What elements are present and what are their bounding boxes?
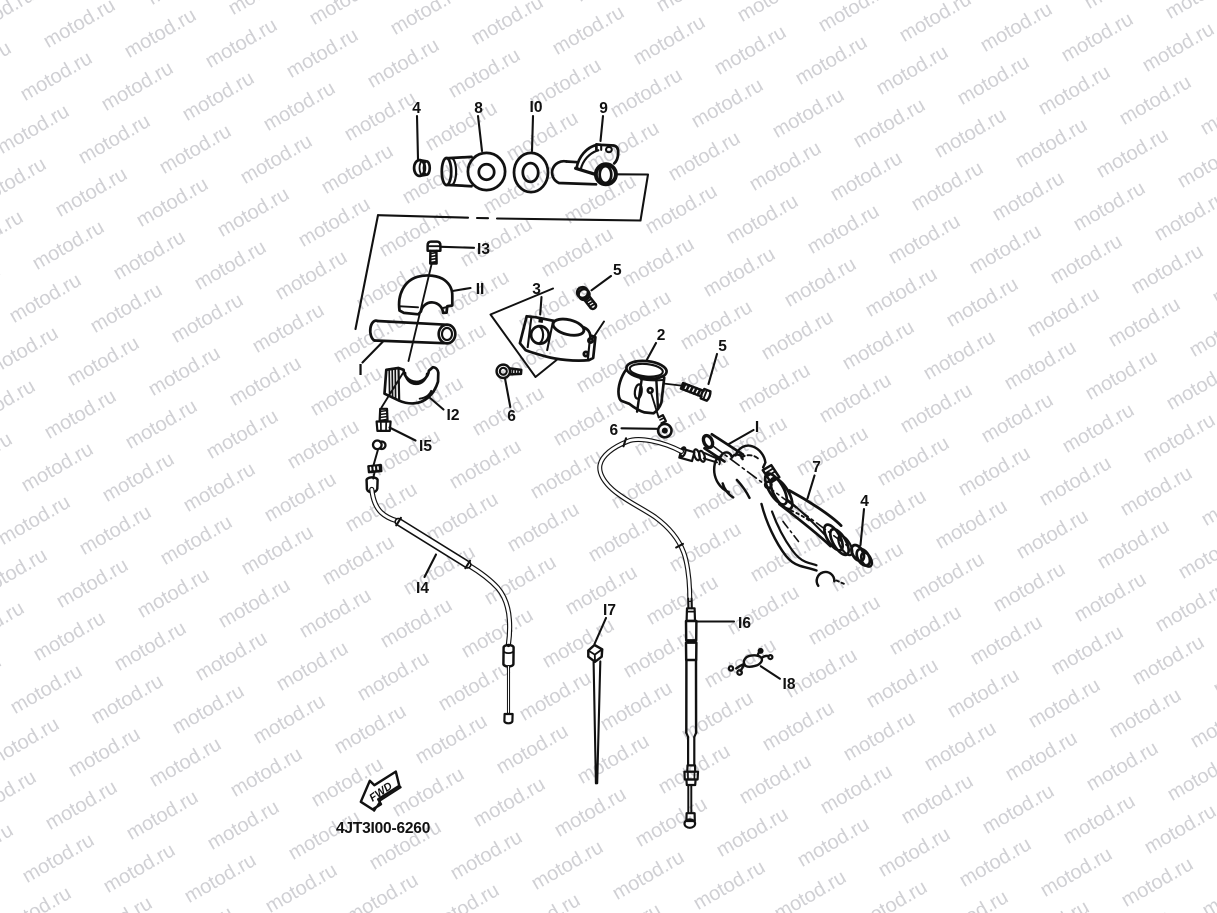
svg-text:I7: I7 (603, 602, 616, 619)
svg-text:I3: I3 (477, 241, 490, 258)
svg-text:5: 5 (613, 262, 622, 279)
svg-text:I5: I5 (419, 438, 432, 455)
svg-text:I0: I0 (530, 99, 543, 116)
svg-text:I: I (755, 419, 759, 436)
svg-text:I2: I2 (447, 407, 460, 424)
svg-text:I: I (358, 362, 362, 379)
svg-text:7: 7 (812, 459, 821, 476)
svg-text:II: II (476, 281, 485, 298)
svg-text:6: 6 (507, 408, 516, 425)
svg-text:I6: I6 (738, 615, 751, 632)
svg-text:I8: I8 (783, 676, 796, 693)
svg-text:8: 8 (474, 100, 483, 117)
svg-text:I4: I4 (416, 580, 429, 597)
svg-text:6: 6 (609, 422, 618, 439)
svg-text:4: 4 (412, 100, 421, 117)
svg-text:4: 4 (860, 493, 869, 510)
svg-text:2: 2 (657, 327, 666, 344)
svg-text:5: 5 (718, 338, 727, 355)
svg-text:9: 9 (599, 100, 608, 117)
svg-text:4JT3I00-6260: 4JT3I00-6260 (336, 820, 430, 837)
